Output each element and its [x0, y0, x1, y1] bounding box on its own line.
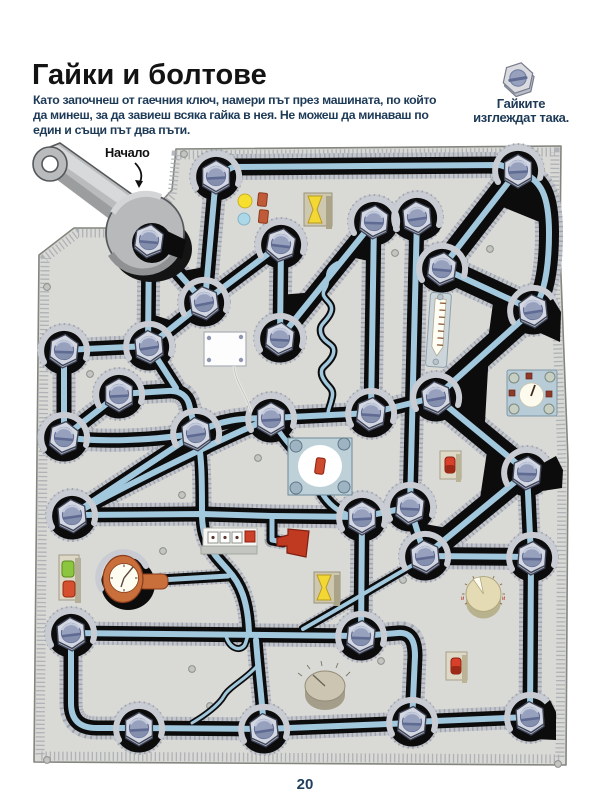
svg-text:Като започнеш от гаечния ключ,: Като започнеш от гаечния ключ, намери пъ… [33, 93, 437, 107]
svg-text:един и същи път два пъти.: един и същи път два пъти. [33, 123, 190, 137]
svg-text:изглеждат така.: изглеждат така. [473, 110, 569, 125]
svg-text:и: и [502, 596, 505, 602]
svg-text:Гайки и болтове: Гайки и болтове [32, 59, 267, 91]
svg-text:20: 20 [297, 776, 314, 793]
svg-text:и: и [461, 596, 464, 602]
svg-text:Начало: Начало [105, 145, 150, 160]
svg-text:да минеш, за да завиеш всяка г: да минеш, за да завиеш всяка гайка в нея… [33, 108, 429, 122]
svg-text:Гайките: Гайките [497, 96, 545, 111]
